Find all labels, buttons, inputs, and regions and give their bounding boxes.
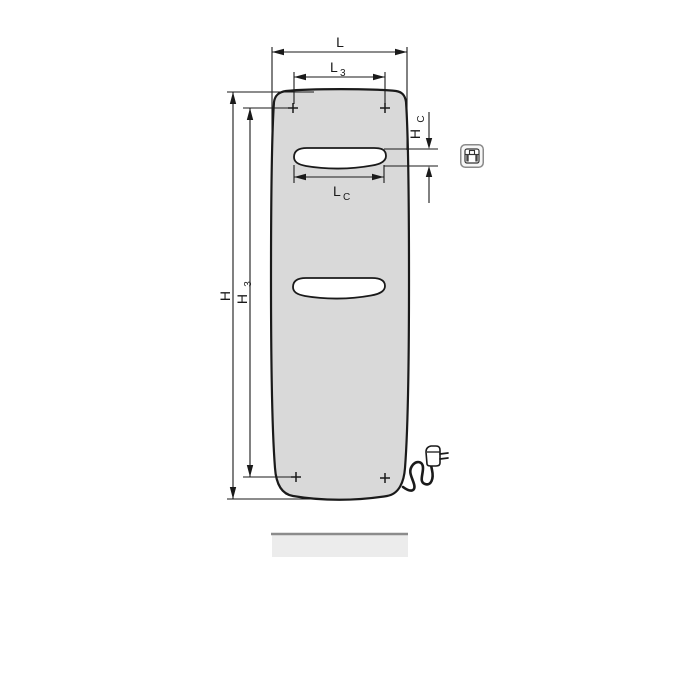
arrowhead [247,108,253,120]
dimension-label-H3-sub: 3 [243,281,254,287]
dimension-label-L: L [336,34,344,50]
plug-prongs [440,453,448,459]
icon-plug-prong-left [466,155,468,162]
vent-slot-top [294,148,386,169]
diagram-canvas: L L 3 L C H H 3 [0,0,700,700]
dimension-label-LC-sub: C [343,192,350,203]
arrowhead [272,49,284,55]
dimension-label-L3-sub: 3 [340,68,346,79]
baseboard [271,534,408,557]
power-plug [426,446,440,466]
arrowhead [247,465,253,477]
dimension-label-LC: L [333,183,341,199]
dimension-label-L3: L [330,59,338,75]
icon-plug-prong-right [475,155,477,162]
vent-slot-middle [293,278,385,299]
electric-connection-icon [461,145,484,168]
power-connection [403,446,448,491]
dimension-label-H3: H [234,294,250,304]
baseboard-strip [272,535,408,557]
arrowhead [426,166,432,177]
arrowhead [395,49,407,55]
arrowhead [230,487,236,499]
radiator-dimension-diagram: L L 3 L C H H 3 [0,0,700,700]
arrowhead [230,92,236,104]
arrowhead [294,74,306,80]
dimension-label-H: H [217,291,233,301]
dimension-label-HC-sub: C [416,115,427,122]
arrowhead [426,138,432,149]
dimension-label-HC: H [407,129,423,139]
arrowhead [373,74,385,80]
